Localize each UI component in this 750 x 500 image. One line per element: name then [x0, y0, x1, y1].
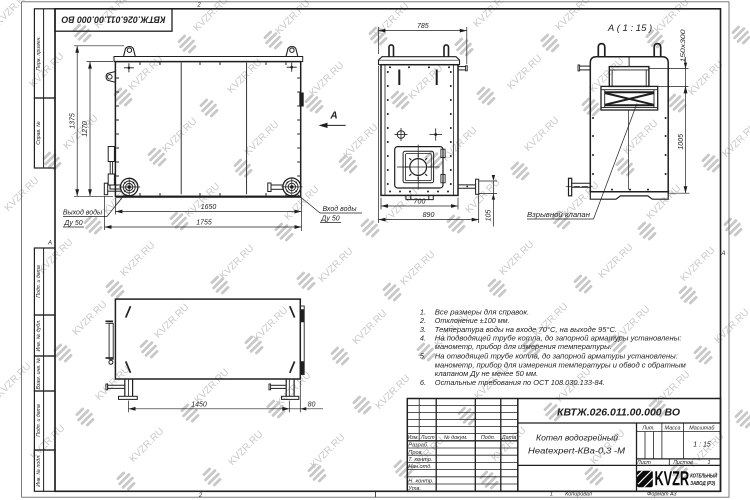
svg-text:2: 2	[198, 493, 203, 499]
svg-text:ЗАВОД (РЗ): ЗАВОД (РЗ)	[690, 481, 715, 487]
svg-text:Лит.: Лит.	[641, 426, 655, 432]
svg-text:Утв.: Утв.	[407, 486, 421, 492]
svg-text:Инв. № дубл.: Инв. № дубл.	[36, 320, 42, 352]
svg-text:Перв. примен.: Перв. примен.	[36, 36, 42, 70]
svg-text:Вход воды: Вход воды	[323, 205, 358, 213]
svg-text:А ( 1 : 15 ): А ( 1 : 15 )	[607, 23, 652, 34]
svg-text:Лист: Лист	[420, 435, 435, 441]
svg-text:манометр, прибор для измерения: манометр, прибор для измерения температу…	[435, 342, 612, 351]
svg-text:1 : 15: 1 : 15	[693, 442, 711, 449]
svg-text:Подп.: Подп.	[481, 435, 495, 441]
svg-text:5.: 5.	[420, 352, 426, 361]
svg-text:Остальные требования по ОСТ 10: Остальные требования по ОСТ 108.030.133-…	[435, 378, 605, 387]
svg-text:Взрывной клапан: Взрывной клапан	[527, 211, 590, 219]
svg-text:На отводящей трубе котла, до з: На отводящей трубе котла, до запорной ар…	[435, 352, 678, 361]
svg-text:Нач.отд.: Нач.отд.	[408, 464, 432, 470]
svg-text:Н. контр.: Н. контр.	[408, 479, 433, 485]
svg-text:6.: 6.	[420, 378, 426, 387]
svg-text:2: 2	[196, 2, 201, 8]
svg-text:Котел водогрейный: Котел водогрейный	[536, 433, 618, 443]
svg-text:Лист: Лист	[636, 460, 651, 466]
svg-text:Разраб.: Разраб.	[408, 443, 428, 449]
svg-text:КВТЖ.026.011.00.000 ВО: КВТЖ.026.011.00.000 ВО	[62, 15, 166, 25]
svg-text:1755: 1755	[196, 220, 212, 227]
svg-text:Копировал: Копировал	[565, 492, 592, 498]
svg-text:Heatexpert-КВа-0,3 -М: Heatexpert-КВа-0,3 -М	[528, 446, 626, 456]
svg-text:Подп. и дата: Подп. и дата	[36, 404, 42, 437]
svg-text:Дата: Дата	[501, 435, 516, 441]
svg-text:КОТЕЛЬНЫЙ: КОТЕЛЬНЫЙ	[690, 471, 717, 479]
svg-text:Формат А3: Формат А3	[647, 492, 677, 498]
svg-text:А: А	[329, 111, 337, 122]
svg-text:890: 890	[423, 212, 435, 219]
svg-text:A: A	[720, 251, 725, 257]
svg-text:Справ. №: Справ. №	[36, 121, 42, 145]
svg-text:A: A	[47, 241, 52, 247]
svg-text:КВТЖ.026.011.00.000 ВО: КВТЖ.026.011.00.000 ВО	[557, 407, 680, 419]
svg-text:1005: 1005	[678, 134, 685, 150]
svg-text:клапаном Ду не менее 50 мм.: клапаном Ду не менее 50 мм.	[435, 369, 538, 378]
svg-text:150х300: 150х300	[680, 29, 687, 62]
svg-text:Ду 50: Ду 50	[320, 216, 339, 223]
svg-text:1375: 1375	[69, 113, 76, 129]
svg-text:Изм.: Изм.	[407, 435, 419, 441]
svg-text:1: 1	[550, 492, 553, 498]
svg-text:Подп. и дата: Подп. и дата	[36, 265, 42, 298]
svg-text:785: 785	[417, 23, 429, 30]
svg-text:Ду 50: Ду 50	[63, 220, 82, 227]
svg-text:Взам. инв. №: Взам. инв. №	[36, 357, 42, 389]
svg-text:Выход воды: Выход воды	[63, 209, 103, 217]
svg-text:1650: 1650	[201, 204, 217, 211]
svg-text:4.: 4.	[420, 333, 426, 342]
svg-text:105: 105	[485, 210, 492, 222]
svg-text:1: 1	[708, 460, 711, 466]
svg-text:№ докум.: № докум.	[444, 435, 468, 441]
svg-text:Пров.: Пров.	[408, 450, 423, 456]
svg-text:Масштаб: Масштаб	[689, 426, 715, 432]
svg-text:Листов: Листов	[672, 460, 693, 466]
svg-text:80: 80	[308, 401, 316, 408]
svg-text:700: 700	[414, 199, 426, 206]
svg-text:Инв. № подл.: Инв. № подл.	[36, 455, 42, 487]
svg-text:Масса: Масса	[665, 426, 681, 432]
svg-text:1270: 1270	[82, 121, 89, 137]
svg-text:Т. контр.: Т. контр.	[408, 457, 432, 463]
svg-text:1450: 1450	[191, 401, 207, 408]
